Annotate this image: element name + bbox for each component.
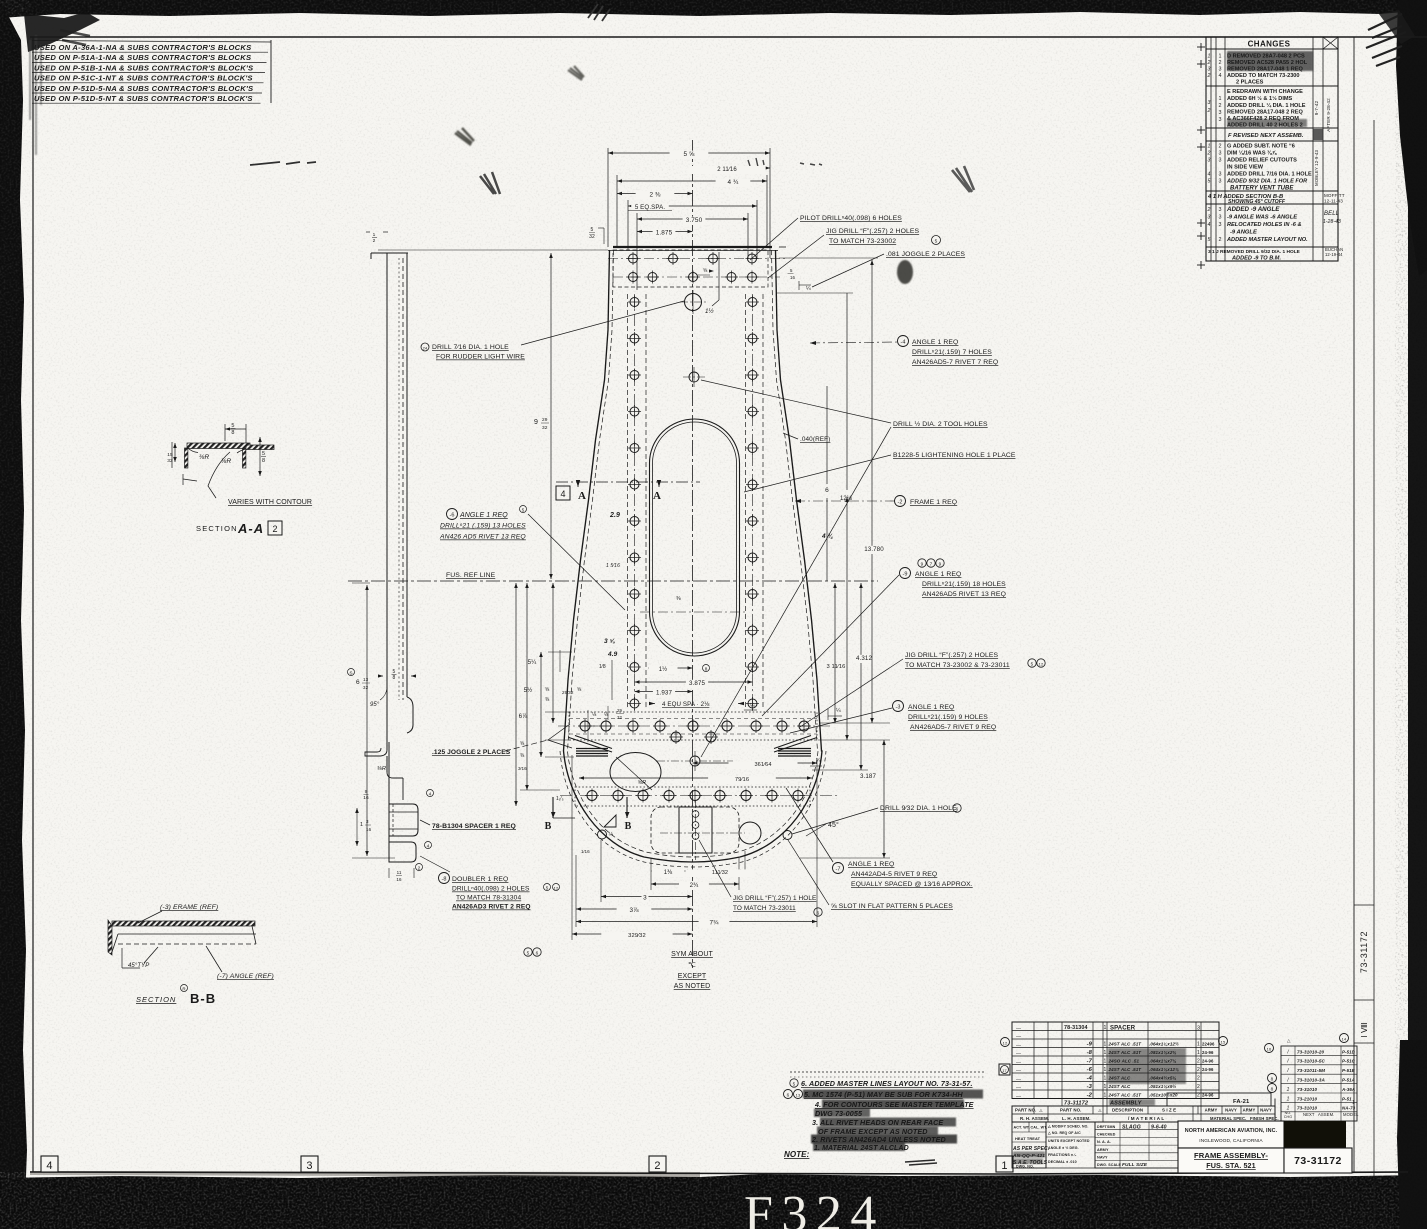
svg-text:-4: -4: [1087, 1076, 1093, 1082]
svg-text:ADDED 9/32 DIA. 1 HOLE FOR: ADDED 9/32 DIA. 1 HOLE FOR: [1226, 179, 1307, 185]
svg-text:24: 24: [423, 346, 428, 351]
svg-text:29: 29: [542, 417, 548, 423]
svg-text:ANGLE ± ½ DEG.: ANGLE ± ½ DEG.: [1048, 1146, 1079, 1150]
svg-text:5: 5: [527, 951, 530, 956]
svg-text:3: 3: [1218, 179, 1221, 185]
svg-text:3: 3: [1218, 158, 1221, 164]
svg-text:—: —: [1016, 1026, 1021, 1032]
svg-text:73-21010: 73-21010: [1297, 1096, 1318, 1101]
svg-text:6: 6: [817, 911, 820, 916]
svg-text:11: 11: [397, 870, 402, 875]
svg-text:DRILLⁿ40(.098) 2 HOLES: DRILLⁿ40(.098) 2 HOLES: [452, 886, 530, 893]
svg-text:1: 1: [1218, 54, 1221, 60]
svg-text:DRFTSMN: DRFTSMN: [1097, 1125, 1116, 1129]
svg-text:MODEL: MODEL: [1343, 1112, 1359, 1117]
svg-text:16: 16: [790, 275, 796, 280]
svg-text:73-31011-5M: 73-31011-5M: [1297, 1068, 1325, 1073]
svg-text:SHOWING 45° CUTOFF: SHOWING 45° CUTOFF: [1228, 199, 1286, 205]
svg-text:-9 ANGLE: -9 ANGLE: [1230, 230, 1258, 236]
svg-text:3: 3: [366, 819, 369, 824]
svg-text:B-B: B-B: [190, 991, 216, 1006]
svg-text:TO MATCH 73-23011: TO MATCH 73-23011: [733, 905, 796, 912]
svg-text:-8: -8: [441, 877, 446, 883]
svg-text:32: 32: [617, 715, 623, 720]
svg-text:N. A. A.: N. A. A.: [1097, 1140, 1111, 1144]
svg-text:EQUALLY SPACED @ 13⁄16 APPROX.: EQUALLY SPACED @ 13⁄16 APPROX.: [851, 881, 973, 888]
svg-text:⅜: ⅜: [676, 596, 681, 602]
svg-text:4: 4: [1218, 73, 1221, 79]
svg-text:32: 32: [363, 685, 369, 690]
svg-text:2: 2: [1218, 237, 1221, 243]
svg-text:1⁄16: 1⁄16: [581, 849, 590, 854]
svg-text:△ MODIFY SCHED. NO.: △ MODIFY SCHED. NO.: [1047, 1125, 1089, 1129]
svg-text:—: —: [1016, 1094, 1021, 1100]
svg-text:DRILL 9⁄32 DIA. 1 HOLE: DRILL 9⁄32 DIA. 1 HOLE: [880, 805, 957, 812]
svg-text:CHECKED: CHECKED: [1097, 1133, 1116, 1137]
svg-text:JIG DRILL “F”(.257) 2 HOLES: JIG DRILL “F”(.257) 2 HOLES: [826, 228, 919, 235]
svg-text:1: 1: [1218, 96, 1221, 102]
svg-text:⅜R: ⅜R: [377, 766, 387, 772]
svg-text:3.750: 3.750: [686, 217, 703, 224]
svg-text:16: 16: [1267, 1047, 1272, 1052]
svg-text:1: 1: [1352, 1100, 1355, 1106]
svg-text:DECIMAL ± .010: DECIMAL ± .010: [1048, 1160, 1077, 1164]
svg-text:PILOT DRILLⁿ40(.098) 6 HOLES: PILOT DRILLⁿ40(.098) 6 HOLES: [800, 215, 902, 222]
svg-text:SECTION: SECTION: [136, 995, 176, 1004]
svg-text:F REVISED NEXT ASSEMB.: F REVISED NEXT ASSEMB.: [1228, 133, 1304, 139]
svg-text:ADDED -9 TO B.M.: ADDED -9 TO B.M.: [1231, 256, 1281, 262]
svg-text:1: 1: [1208, 54, 1211, 60]
svg-text:2: 2: [1207, 207, 1211, 213]
svg-text:.040(REF): .040(REF): [800, 436, 830, 443]
svg-text:3: 3: [306, 1160, 312, 1172]
svg-text:IN SIDE VIEW: IN SIDE VIEW: [1227, 165, 1264, 171]
svg-text:17: 17: [1002, 1069, 1006, 1073]
svg-text:16: 16: [396, 877, 402, 882]
svg-text:3 ⅝: 3 ⅝: [604, 638, 616, 645]
svg-text:6⅞: 6⅞: [519, 713, 529, 720]
svg-text:/: /: [1286, 1078, 1289, 1084]
svg-text:2: 2: [1218, 60, 1221, 66]
svg-text:12: 12: [1003, 1041, 1008, 1046]
svg-text:-8: -8: [1087, 1050, 1093, 1056]
svg-text:2: 2: [1197, 1067, 1200, 1073]
svg-text:5 ⅝: 5 ⅝: [684, 151, 696, 158]
svg-text:AFTER 9-28-42: AFTER 9-28-42: [1326, 98, 1331, 132]
svg-text:—: —: [1016, 1034, 1021, 1040]
svg-text:29: 29: [617, 708, 623, 713]
svg-text:ARMY: ARMY: [1243, 1108, 1256, 1113]
svg-text:13: 13: [363, 677, 369, 682]
svg-text:73-31172: 73-31172: [1359, 931, 1369, 973]
svg-text:NA-73: NA-73: [1342, 1106, 1356, 1111]
svg-text:DRILLⁿ21(.159) 7 HOLES: DRILLⁿ21(.159) 7 HOLES: [912, 349, 992, 356]
svg-text:3​61⁄64: 3​61⁄64: [754, 762, 771, 768]
svg-text:ACT. WT.: ACT. WT.: [1014, 1126, 1030, 1130]
svg-text:3 1 J REMOVED DRILL 9/32 DI: 3 1 J REMOVED DRILL 9/32 DIA. 1 HOLE: [1208, 249, 1301, 255]
svg-text:1: 1: [1104, 1093, 1107, 1099]
svg-text:5 EQ.SPA.: 5 EQ.SPA.: [635, 204, 666, 211]
svg-text:5: 5: [262, 451, 265, 457]
svg-text:2 ⅜: 2 ⅜: [650, 192, 662, 199]
svg-text:4: 4: [1208, 172, 1211, 178]
svg-text:RELOCATED HOLES IN -6 &: RELOCATED HOLES IN -6 &: [1227, 222, 1301, 228]
svg-text:1-28-43: 1-28-43: [1323, 219, 1341, 225]
svg-text:73-31010: 73-31010: [1297, 1087, 1318, 1092]
svg-text:3: 3: [1218, 67, 1221, 73]
svg-text:R. H. ASSEM.: R. H. ASSEM.: [1020, 1116, 1049, 1121]
svg-text:4: 4: [427, 844, 430, 849]
svg-text:12: 12: [1039, 662, 1044, 667]
svg-text:¼: ¼: [609, 832, 614, 838]
svg-text:⅜: ⅜: [520, 753, 525, 759]
svg-text:JIG DRILL “F”(.257) 2 HOLES: JIG DRILL “F”(.257) 2 HOLES: [905, 652, 998, 659]
svg-text:DRILL 7⁄16 DIA. 1 HOLE: DRILL 7⁄16 DIA. 1 HOLE: [432, 344, 509, 351]
svg-text:AN426AD5 RIVET 13 REQ: AN426AD5 RIVET 13 REQ: [922, 591, 1006, 598]
svg-text:4.9: 4.9: [607, 651, 618, 658]
svg-text:8: 8: [1271, 1087, 1274, 1092]
svg-text:32: 32: [542, 425, 548, 431]
svg-text:3: 3: [643, 895, 647, 902]
svg-text:DWG. SCALE: DWG. SCALE: [1097, 1163, 1121, 1167]
svg-text:8: 8: [393, 675, 396, 681]
svg-text:NAVY: NAVY: [1225, 1108, 1237, 1113]
svg-text:G ADDED SUBT. NOTE “6: G ADDED SUBT. NOTE “6: [1227, 144, 1295, 150]
svg-text:32: 32: [167, 458, 173, 464]
svg-text:3: 3: [1218, 172, 1221, 178]
svg-text:ADDED TO MATCH 73-2300: ADDED TO MATCH 73-2300: [1227, 73, 1300, 79]
svg-text:ADDED MASTER LAYOUT NO.: ADDED MASTER LAYOUT NO.: [1226, 237, 1308, 243]
svg-text:DRILLⁿ21(.159) 18 HOLES: DRILLⁿ21(.159) 18 HOLES: [922, 581, 1006, 588]
svg-text:2: 2: [1207, 60, 1211, 66]
svg-text:A-36A: A-36A: [1341, 1087, 1355, 1092]
svg-text:12-11-43: 12-11-43: [1324, 198, 1343, 203]
svg-text:VARIES WITH CONTOUR: VARIES WITH CONTOUR: [228, 499, 312, 506]
svg-text:2.9: 2.9: [609, 512, 620, 519]
svg-text:P-51: P-51: [1342, 1096, 1352, 1101]
svg-text:1: 1: [1287, 1096, 1290, 1102]
svg-text:2: 2: [654, 1160, 660, 1172]
svg-text:REMOVED 28A17-048 2 REQ: REMOVED 28A17-048 2 REQ: [1227, 110, 1304, 116]
svg-text:14: 14: [1342, 1037, 1347, 1042]
svg-text:D REMOVED 28A7-048 2 PCS: D REMOVED 28A7-048 2 PCS: [1227, 54, 1305, 60]
svg-text:1: 1: [1104, 1059, 1107, 1065]
svg-text:/: /: [1286, 1049, 1289, 1055]
svg-text:1: 1: [1104, 1025, 1107, 1031]
svg-text:—: —: [1016, 1085, 1021, 1091]
svg-text:⅝ SLOT IN FLAT PATTERN 5 PLACE: ⅝ SLOT IN FLAT PATTERN 5 PLACES: [831, 903, 953, 910]
svg-text:-9 ANGLE WAS -6 ANGLE: -9 ANGLE WAS -6 ANGLE: [1227, 215, 1298, 221]
svg-text:△: △: [1287, 1038, 1291, 1043]
svg-text:F324: F324: [744, 1186, 885, 1229]
svg-text:AN426AD3 RIVET 2 REQ: AN426AD3 RIVET 2 REQ: [452, 904, 531, 911]
svg-text:3 ​11⁄16: 3 ​11⁄16: [827, 664, 846, 670]
svg-text:1: 1: [1104, 1084, 1107, 1090]
svg-text:B1228-5 LIGHTENING HOLE 1 PLA: B1228-5 LIGHTENING HOLE 1 PLACE: [893, 452, 1016, 459]
svg-text:2: 2: [272, 524, 277, 534]
svg-text:9-7-42: 9-7-42: [1314, 101, 1320, 116]
svg-text:FULL SIZE: FULL SIZE: [1122, 1162, 1148, 1168]
svg-text:SLAGG: SLAGG: [1122, 1125, 1141, 1131]
svg-text:NAVY: NAVY: [1260, 1108, 1272, 1113]
svg-text:3​29⁄32: 3​29⁄32: [628, 933, 646, 939]
svg-text:1: 1: [1287, 1087, 1290, 1093]
svg-text:PART NO.: PART NO.: [1015, 1108, 1036, 1113]
svg-text:NEXT: NEXT: [1303, 1112, 1315, 1117]
svg-text:ARMY: ARMY: [1205, 1108, 1218, 1113]
svg-text:REMOVED 28A17-048 1 REQ: REMOVED 28A17-048 1 REQ: [1227, 67, 1304, 73]
svg-text:5: 5: [793, 1082, 796, 1087]
svg-text:FUS. STA. 521: FUS. STA. 521: [1206, 1161, 1256, 1170]
svg-text:DOUBLER 1 REQ: DOUBLER 1 REQ: [452, 876, 508, 883]
svg-text:ADDED DRILL ¼ DIA. 1 HOLE: ADDED DRILL ¼ DIA. 1 HOLE: [1227, 102, 1306, 109]
svg-text:FA-21: FA-21: [1233, 1099, 1250, 1105]
svg-text:-4: -4: [900, 340, 905, 346]
svg-text:SECTION: SECTION: [196, 524, 238, 533]
svg-text:NOTE:: NOTE:: [784, 1150, 810, 1159]
svg-text:24ST ALC .51T: 24ST ALC .51T: [1108, 1093, 1143, 1098]
svg-text:CHANGES: CHANGES: [1248, 40, 1291, 49]
svg-text:NORTH AMERICAN AVIATION, INC.: NORTH AMERICAN AVIATION, INC.: [1185, 1128, 1278, 1134]
svg-text:CAL. WT.: CAL. WT.: [1031, 1126, 1048, 1130]
svg-text:S I Z E: S I Z E: [1162, 1108, 1176, 1113]
svg-text:EXCEPT: EXCEPT: [678, 973, 707, 980]
svg-text:78-B1304 SPACER 1 REQ: 78-B1304 SPACER 1 REQ: [432, 823, 516, 830]
svg-text:E REDRAWN WITH CHANGE: E REDRAWN WITH CHANGE: [1227, 89, 1303, 95]
svg-text:-2: -2: [1087, 1093, 1093, 1099]
svg-text:USED ON P-51B-1-NA & SUBS CONT: USED ON P-51B-1-NA & SUBS CONTRACTOR'S B…: [34, 63, 253, 72]
svg-text:P-51C: P-51C: [1342, 1059, 1356, 1064]
svg-text:-3: -3: [895, 705, 900, 711]
svg-text:PART NO.: PART NO.: [1060, 1108, 1081, 1113]
svg-text:2: 2: [1197, 1084, 1200, 1090]
svg-text:JIG DRILL “F”(.257) 1 HOLE: JIG DRILL “F”(.257) 1 HOLE: [733, 895, 816, 902]
svg-text:6. ADDED MASTER LINES LAYOUT N: 6. ADDED MASTER LINES LAYOUT NO. 73-31-5…: [801, 1079, 973, 1088]
svg-text:24ST ALC .51T: 24ST ALC .51T: [1108, 1042, 1143, 1047]
svg-text:5: 5: [231, 423, 234, 429]
svg-text:13: 13: [796, 1093, 801, 1098]
svg-text:/: /: [1286, 1068, 1289, 1074]
svg-text:BATTERY VENT TUBE: BATTERY VENT TUBE: [1230, 186, 1294, 192]
svg-text:AN426 AD5 RIVET 13 REQ: AN426 AD5 RIVET 13 REQ: [439, 534, 526, 541]
svg-text:1: 1: [1001, 1160, 1007, 1172]
svg-text:TO MATCH 78-31304: TO MATCH 78-31304: [456, 895, 521, 902]
svg-text:⅛: ⅛: [592, 712, 597, 718]
svg-text:3.875: 3.875: [689, 680, 705, 687]
svg-text:3: 3: [1197, 1026, 1200, 1032]
svg-text:2 PLACES: 2 PLACES: [1236, 80, 1264, 86]
svg-text:¼: ¼: [750, 703, 755, 709]
svg-text:DRILLⁿ21 (.159) 13 HOLES: DRILLⁿ21 (.159) 13 HOLES: [440, 523, 526, 530]
svg-text:⅜: ⅜: [545, 697, 550, 703]
svg-text:73-31172: 73-31172: [1294, 1155, 1342, 1167]
svg-text:MOBLEY 12-9-43: MOBLEY 12-9-43: [1314, 150, 1319, 186]
svg-text:CHG: CHG: [1284, 1115, 1292, 1119]
svg-text:73-31010-20: 73-31010-20: [1297, 1049, 1324, 1054]
svg-text:⅝: ⅝: [703, 268, 708, 274]
svg-text:7​9⁄16: 7​9⁄16: [735, 777, 749, 783]
svg-text:P-51D: P-51D: [1342, 1049, 1356, 1054]
svg-text:L. H. ASSEM.: L. H. ASSEM.: [1062, 1116, 1091, 1121]
svg-text:1½: 1½: [659, 666, 668, 673]
svg-text:USED ON P-51C-1-NT & SUBS CONT: USED ON P-51C-1-NT & SUBS CONTRACTOR'S B…: [34, 74, 253, 83]
svg-text:5½: 5½: [524, 687, 533, 694]
svg-text:—: —: [1016, 1043, 1021, 1049]
svg-text:—: —: [1016, 1060, 1021, 1066]
svg-text:MOFFITT: MOFFITT: [1324, 193, 1345, 198]
svg-text:DIM ⅛/16 WAS ⅜⅞: DIM ⅛/16 WAS ⅜⅞: [1227, 151, 1277, 157]
svg-text:6: 6: [825, 487, 829, 494]
svg-text:1​11⁄32: 1​11⁄32: [712, 870, 728, 876]
svg-text:3: 3: [1218, 215, 1221, 221]
svg-text:24-96: 24-96: [1202, 1067, 1214, 1072]
svg-text:-6: -6: [449, 513, 454, 519]
svg-text:⅝: ⅝: [520, 741, 525, 747]
svg-text:(-3) ERAME (REF): (-3) ERAME (REF): [160, 904, 218, 911]
svg-text:FINISH SPEC.: FINISH SPEC.: [1250, 1116, 1279, 1121]
svg-text:FOR RUDDER LIGHT WIRE: FOR RUDDER LIGHT WIRE: [436, 354, 525, 361]
svg-text:.051x10½x20: .051x10½x20: [1149, 1092, 1178, 1098]
svg-text:.081 JOGGLE 2 PLACES: .081 JOGGLE 2 PLACES: [886, 251, 965, 258]
svg-text:ANGLE 1 REQ: ANGLE 1 REQ: [908, 704, 954, 711]
svg-text:1½: 1½: [705, 308, 714, 315]
svg-text:ASSEM.: ASSEM.: [1318, 1112, 1334, 1117]
svg-text:4 ¾: 4 ¾: [728, 179, 740, 186]
svg-text:FRACTIONS ± ⁄₂: FRACTIONS ± ⁄₂: [1048, 1153, 1077, 1157]
svg-text:29⁄32: 29⁄32: [562, 690, 574, 695]
svg-text:6: 6: [536, 951, 539, 956]
svg-text:TO MATCH 73-23002 & 73-23011: TO MATCH 73-23002 & 73-23011: [905, 662, 1010, 669]
svg-text:B: B: [545, 821, 552, 832]
svg-text:4: 4: [1208, 222, 1211, 228]
svg-text:9: 9: [365, 789, 368, 795]
svg-text:AS NOTED: AS NOTED: [674, 983, 711, 990]
svg-text:1: 1: [1197, 1050, 1200, 1056]
svg-text:ARMY: ARMY: [1097, 1148, 1109, 1152]
svg-text:6: 6: [787, 1093, 790, 1098]
svg-text:USED ON P-51D-5-NA & SUBS CONT: USED ON P-51D-5-NA & SUBS CONTRACTOR'S B…: [34, 84, 253, 93]
svg-text:USED ON P-51D-5-NT & SUBS CONT: USED ON P-51D-5-NT & SUBS CONTRACTOR'S B…: [34, 94, 253, 103]
svg-text:SYM ABOUT: SYM ABOUT: [671, 951, 713, 958]
svg-text:2: 2: [373, 238, 376, 244]
svg-text:.125 JOGGLE 2 PLACES: .125 JOGGLE 2 PLACES: [432, 749, 511, 756]
svg-text:AN442AD4-5 RIVET 9 REQ: AN442AD4-5 RIVET 9 REQ: [851, 871, 937, 878]
svg-text:12: 12: [554, 886, 559, 891]
svg-text:-9: -9: [1087, 1042, 1093, 1048]
svg-text:FUS. REF LINE: FUS. REF LINE: [446, 572, 496, 579]
svg-text:ADDED -9 ANGLE: ADDED -9 ANGLE: [1226, 206, 1280, 213]
svg-text:1⅜: 1⅜: [664, 870, 673, 876]
svg-text:USED ON P-51A-1-NA & SUBS CONT: USED ON P-51A-1-NA & SUBS CONTRACTOR'S B…: [34, 53, 251, 62]
svg-text:1: 1: [1104, 1042, 1107, 1048]
svg-text:1: 1: [1104, 1050, 1107, 1056]
svg-text:15: 15: [1221, 1040, 1226, 1045]
svg-text:73-31010-3A: 73-31010-3A: [1297, 1078, 1325, 1083]
svg-text:-9: -9: [902, 572, 907, 578]
svg-text:3: 3: [1218, 151, 1221, 157]
svg-text:3: 3: [1208, 215, 1211, 221]
svg-text:AN426AD5-7 RIVET 7 REQ: AN426AD5-7 RIVET 7 REQ: [912, 359, 998, 366]
svg-text:TO MATCH 73-23002: TO MATCH 73-23002: [829, 238, 896, 245]
svg-text:3: 3: [1218, 222, 1221, 228]
svg-text:3⅞: 3⅞: [629, 907, 639, 914]
svg-text:℃: ℃: [688, 962, 696, 969]
svg-text:DESCRIPTION: DESCRIPTION: [1112, 1108, 1143, 1113]
svg-text:ADDED DRILL 7/16 DIA. 1 HOLE: ADDED DRILL 7/16 DIA. 1 HOLE: [1227, 172, 1312, 178]
svg-text:BELL: BELL: [1324, 211, 1339, 217]
svg-text:⅝: ⅝: [577, 687, 582, 693]
svg-text:HEAT TREAT: HEAT TREAT: [1015, 1136, 1041, 1141]
svg-text:ANGLE 1 REQ: ANGLE 1 REQ: [912, 339, 958, 346]
svg-text:32: 32: [589, 234, 595, 240]
svg-text:15: 15: [167, 452, 173, 458]
svg-text:2: 2: [1207, 73, 1211, 79]
svg-text:-7: -7: [1087, 1059, 1093, 1065]
svg-text:5: 5: [591, 227, 594, 233]
svg-text:ANGLE 1 REQ: ANGLE 1 REQ: [459, 512, 508, 519]
svg-text:1⁄8: 1⁄8: [599, 664, 606, 670]
svg-text:73-31010: 73-31010: [1297, 1106, 1318, 1111]
svg-text:A: A: [578, 490, 586, 502]
svg-text:3: 3: [1218, 117, 1221, 123]
svg-text:3.187: 3.187: [860, 773, 876, 780]
svg-text:ADDED RELIEF CUTOUTS: ADDED RELIEF CUTOUTS: [1227, 158, 1297, 164]
svg-text:AS PER SPEC.: AS PER SPEC.: [1012, 1146, 1049, 1152]
svg-text:NAVY: NAVY: [1097, 1156, 1108, 1160]
svg-text:3: 3: [1218, 110, 1221, 116]
svg-text:2: 2: [418, 866, 421, 871]
svg-text:78-31304: 78-31304: [1064, 1025, 1088, 1031]
svg-text:4: 4: [429, 792, 432, 797]
svg-text:UNITS EXCEPT NOTED: UNITS EXCEPT NOTED: [1048, 1139, 1090, 1143]
svg-text:¼: ¼: [836, 708, 841, 714]
svg-text:/ M A T E R I A L: / M A T E R I A L: [1128, 1116, 1164, 1121]
svg-text:/: /: [1286, 1059, 1289, 1065]
svg-text:95°: 95°: [370, 702, 380, 708]
svg-text:P-51A: P-51A: [1342, 1078, 1355, 1083]
svg-text:1₁⁄₅: 1₁⁄₅: [556, 796, 564, 802]
svg-text:7: 7: [930, 562, 933, 567]
svg-text:INGLEWOOD, CALIFORNIA: INGLEWOOD, CALIFORNIA: [1199, 1138, 1263, 1144]
svg-text:7¾: 7¾: [709, 920, 719, 927]
svg-text:ANGLE 1 REQ: ANGLE 1 REQ: [915, 571, 961, 578]
svg-text:1.875: 1.875: [656, 230, 673, 237]
svg-text:MATERIAL SPEC.: MATERIAL SPEC.: [1210, 1116, 1246, 1121]
svg-text:12-19-44: 12-19-44: [1325, 252, 1343, 257]
svg-text:-7: -7: [835, 867, 840, 873]
svg-text:2¾: 2¾: [690, 882, 700, 889]
svg-text:AN426AD5-7 RIVET 9 REQ: AN426AD5-7 RIVET 9 REQ: [910, 724, 996, 731]
svg-text:24ST ALC: 24ST ALC: [1108, 1084, 1132, 1089]
svg-text:SPACER: SPACER: [1110, 1026, 1136, 1032]
svg-text:4.312: 4.312: [856, 655, 872, 662]
svg-text:2: 2: [1207, 108, 1211, 114]
svg-text:4 EQU SPA · 2⅛: 4 EQU SPA · 2⅛: [662, 701, 710, 708]
svg-text:2 ​11⁄16: 2 ​11⁄16: [717, 167, 737, 173]
svg-text:9: 9: [921, 562, 924, 567]
svg-text:S: S: [349, 671, 352, 676]
svg-text:1: 1: [1104, 1067, 1107, 1073]
svg-text:5¼: 5¼: [528, 659, 538, 666]
svg-text:.064x1¼x12½: .064x1¼x12½: [1149, 1041, 1179, 1047]
svg-text:45°: 45°: [828, 821, 839, 829]
svg-text:8: 8: [705, 667, 708, 672]
svg-text:5: 5: [546, 886, 549, 891]
svg-text:-3: -3: [1087, 1084, 1093, 1090]
svg-text:73-31010-5C: 73-31010-5C: [1297, 1059, 1325, 1064]
svg-text:-2: -2: [897, 500, 902, 506]
svg-text:2: 2: [1197, 1059, 1200, 1065]
